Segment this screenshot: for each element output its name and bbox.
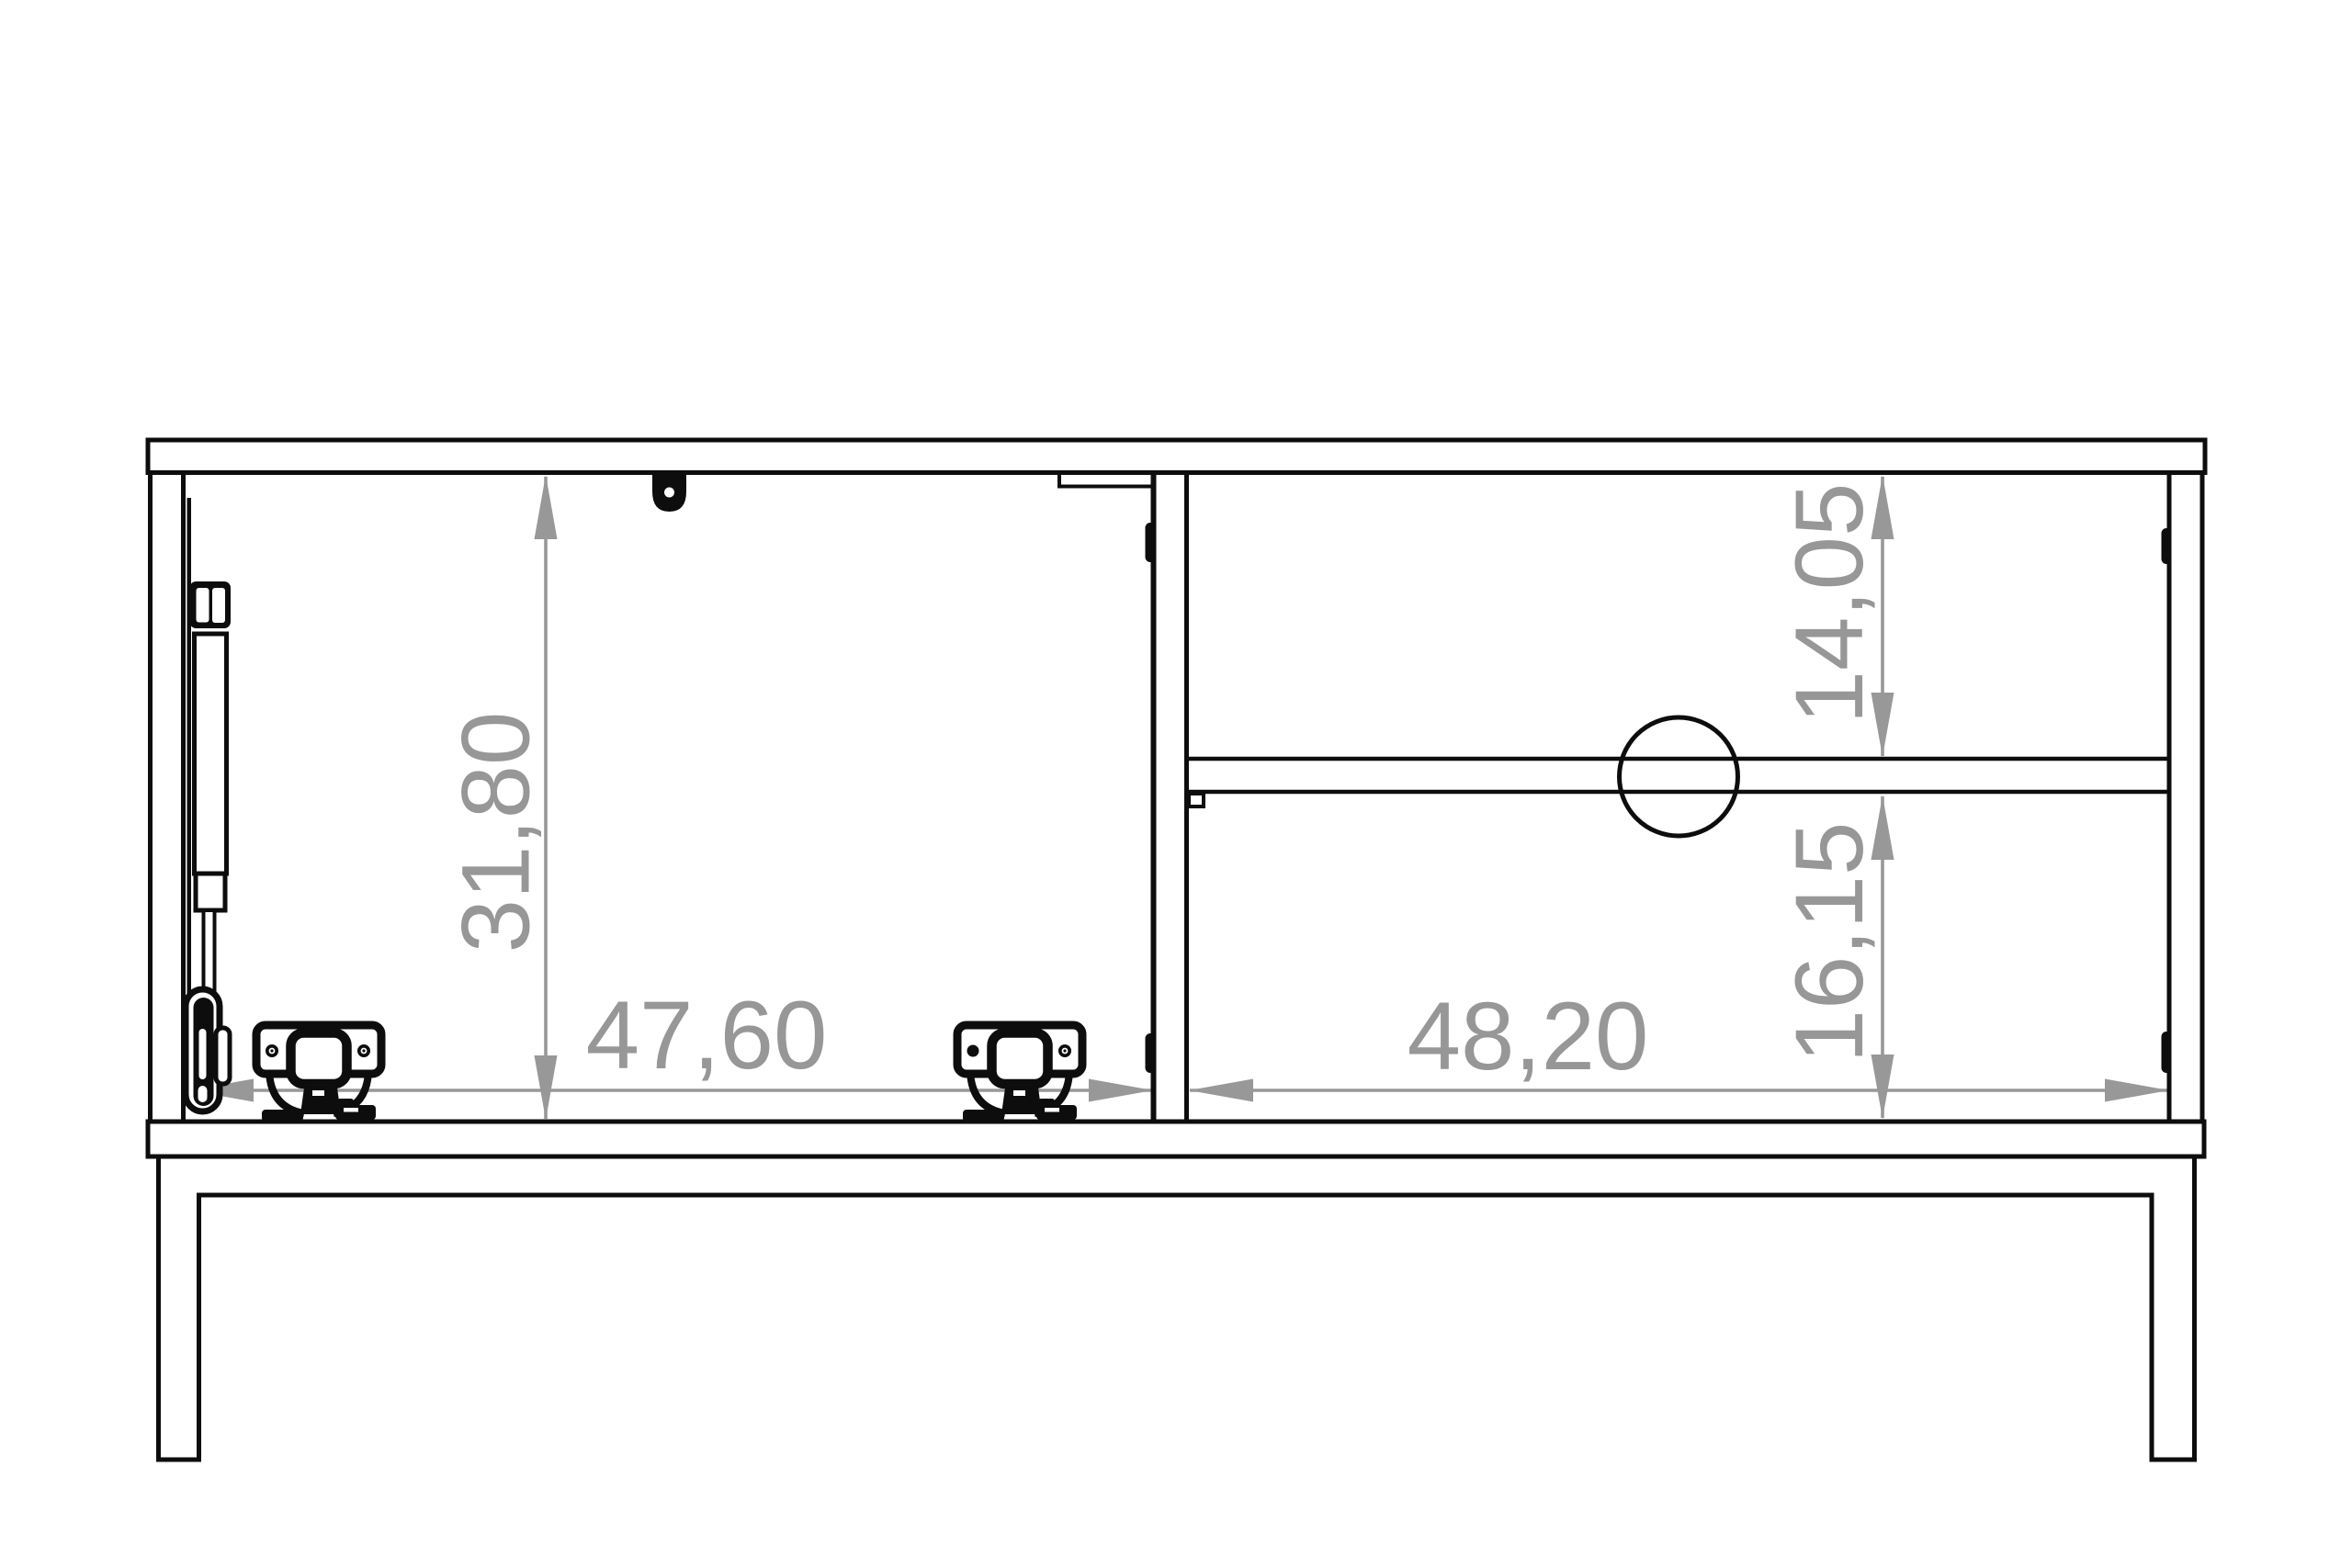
svg-text:14,05: 14,05 bbox=[1776, 483, 1883, 725]
svg-text:16,15: 16,15 bbox=[1776, 822, 1883, 1064]
svg-text:47,60: 47,60 bbox=[586, 982, 828, 1089]
svg-text:48,20: 48,20 bbox=[1408, 983, 1649, 1090]
svg-text:31,80: 31,80 bbox=[443, 712, 550, 953]
